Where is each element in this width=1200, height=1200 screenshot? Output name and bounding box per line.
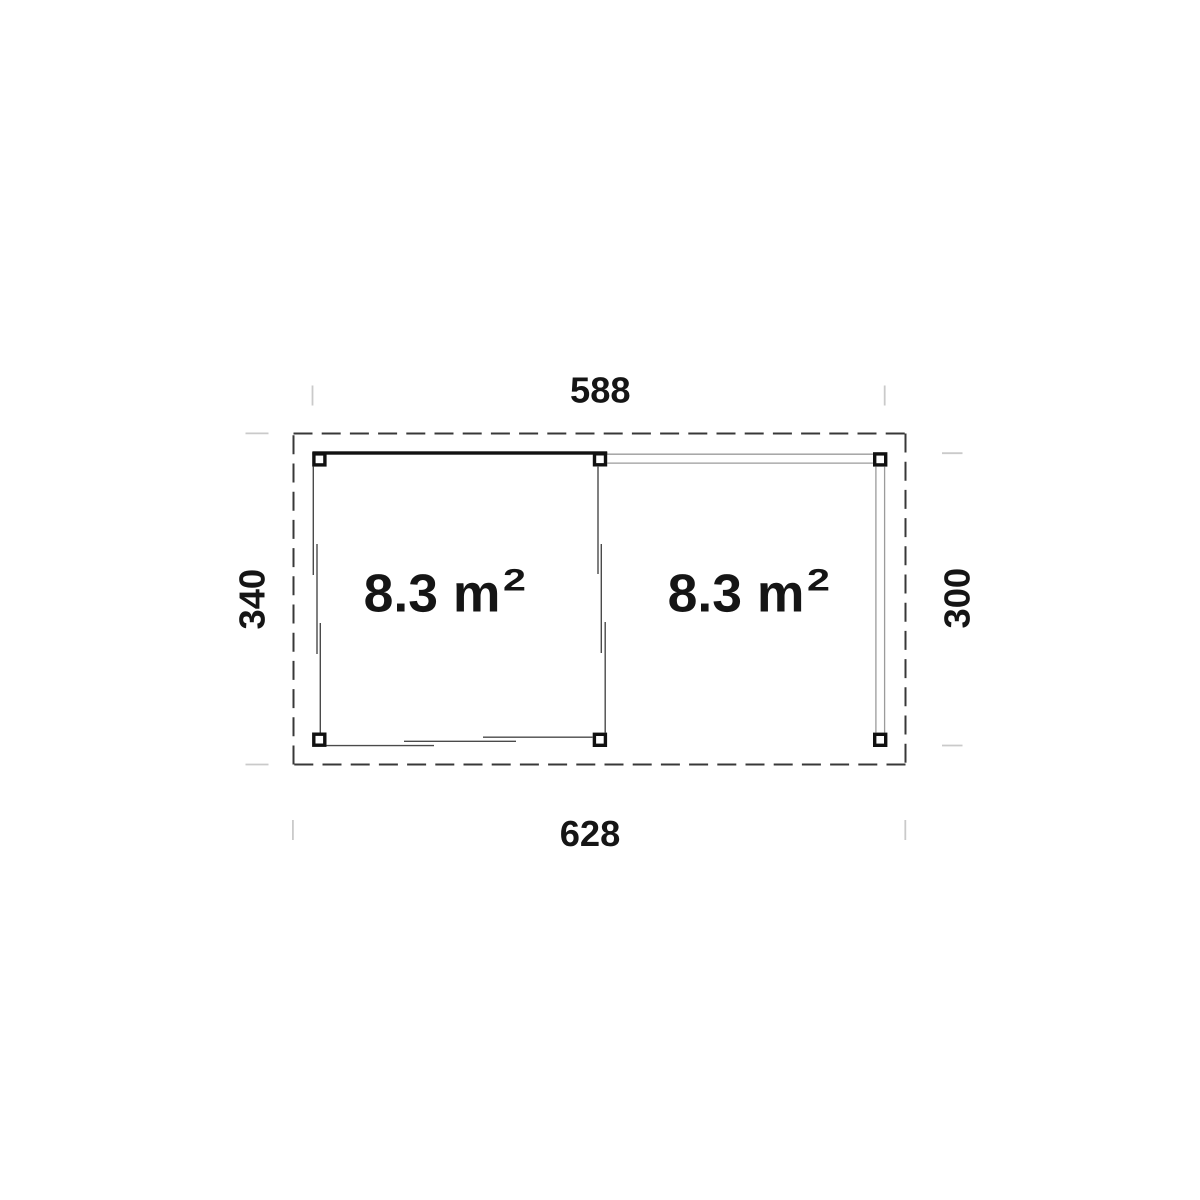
svg-text:8.3 m: 8.3 m xyxy=(364,565,501,624)
svg-text:2: 2 xyxy=(503,562,526,597)
svg-text:628: 628 xyxy=(560,813,621,854)
svg-text:340: 340 xyxy=(232,569,273,630)
svg-text:300: 300 xyxy=(937,568,978,629)
svg-text:8.3 m: 8.3 m xyxy=(668,565,805,624)
svg-text:2: 2 xyxy=(807,562,830,597)
svg-text:588: 588 xyxy=(570,370,631,411)
